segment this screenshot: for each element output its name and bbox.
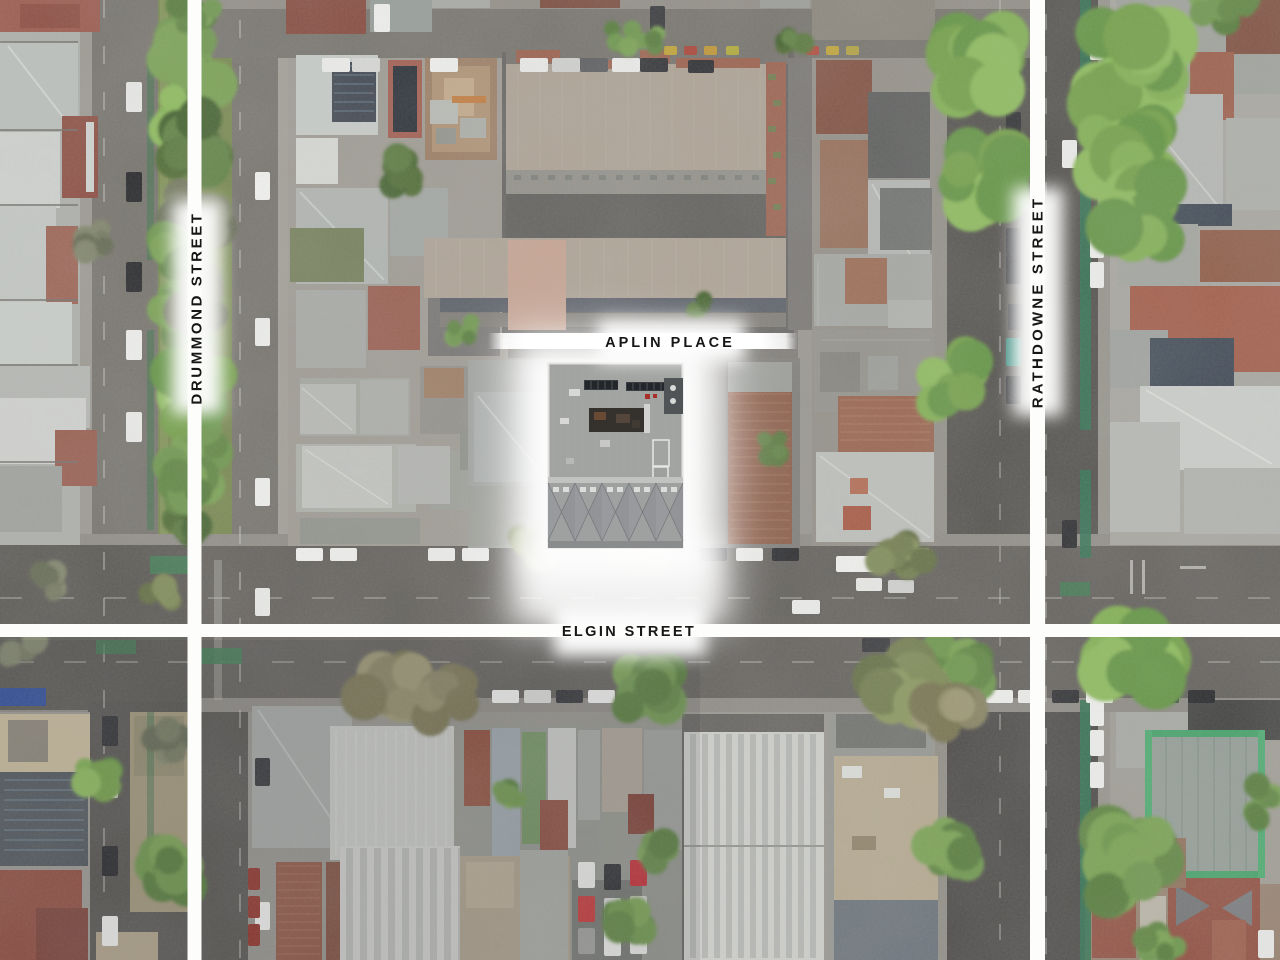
svg-text:DRUMMOND STREET: DRUMMOND STREET	[189, 211, 206, 404]
svg-text:RATHDOWNE STREET: RATHDOWNE STREET	[1030, 196, 1047, 409]
svg-text:ELGIN STREET: ELGIN STREET	[562, 624, 696, 640]
svg-text:APLIN PLACE: APLIN PLACE	[605, 335, 735, 351]
